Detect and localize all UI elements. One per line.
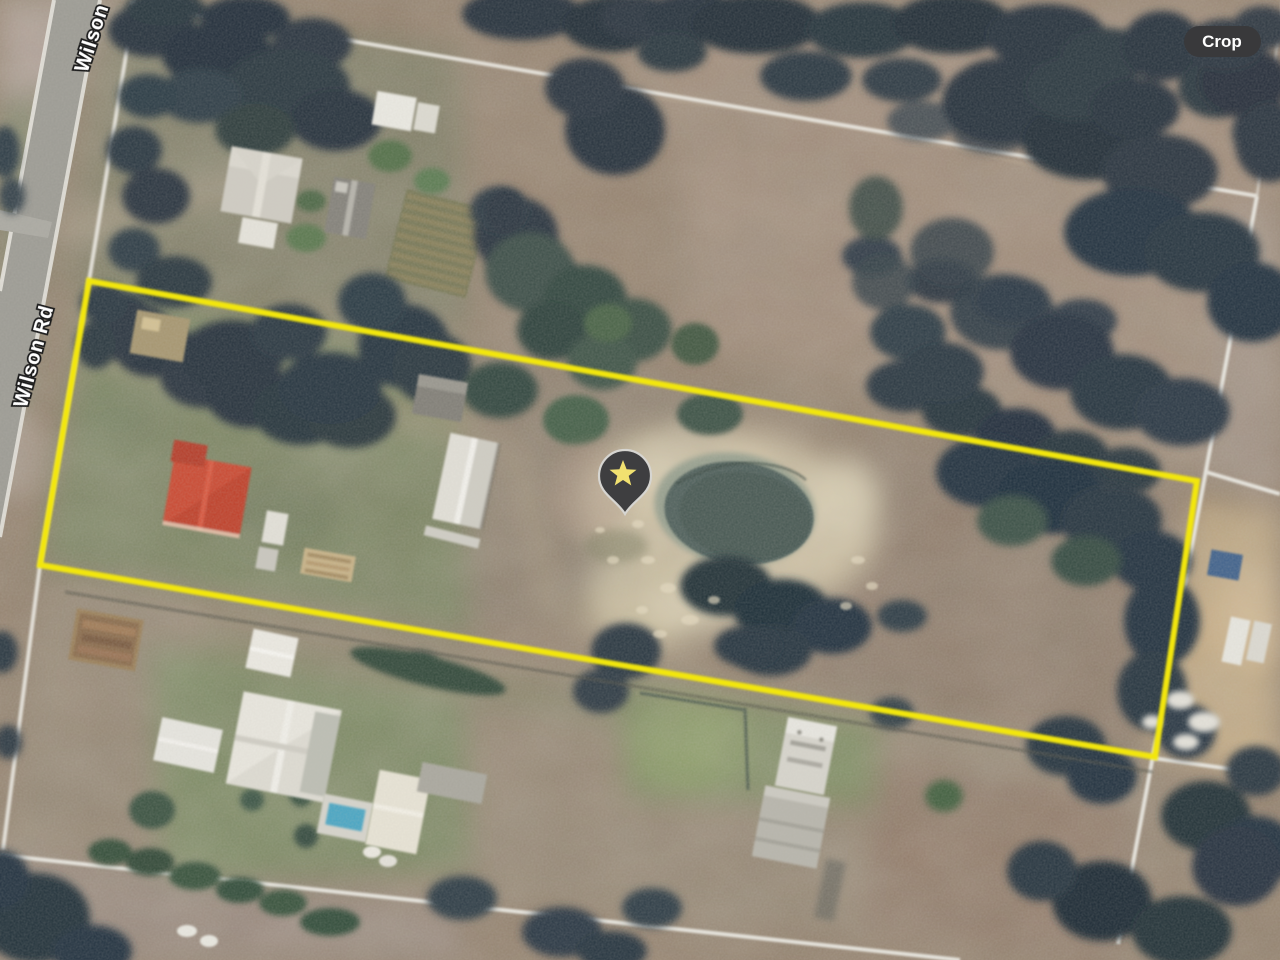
svg-text:Crop: Crop [1202, 32, 1242, 51]
